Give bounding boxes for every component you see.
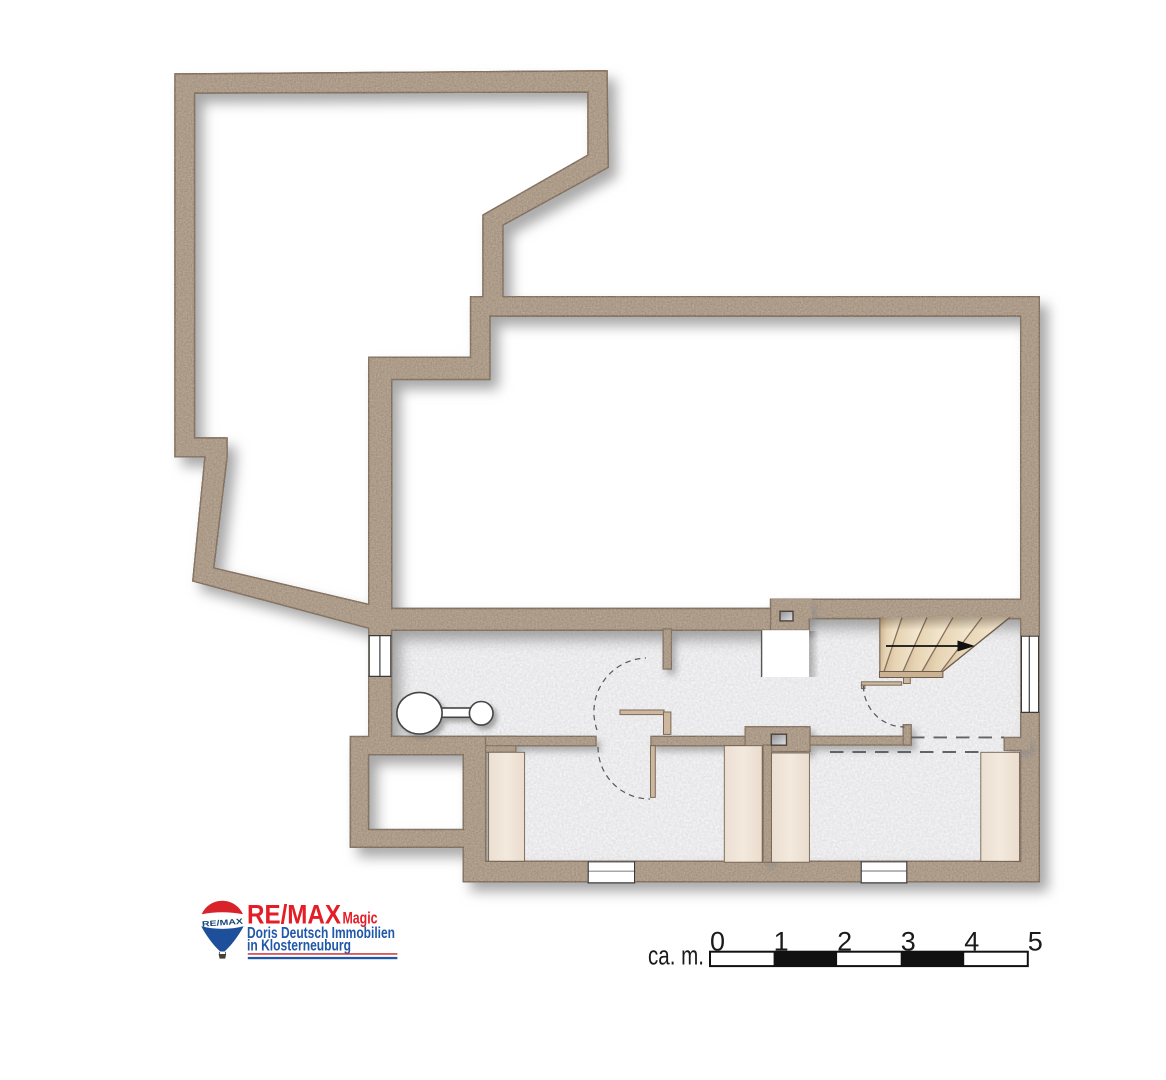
svg-text:ca. m.: ca. m.	[648, 941, 704, 971]
svg-text:RE/MAX: RE/MAX	[202, 917, 245, 929]
svg-text:in Klosterneuburg: in Klosterneuburg	[247, 938, 351, 955]
svg-text:5: 5	[1028, 927, 1043, 957]
